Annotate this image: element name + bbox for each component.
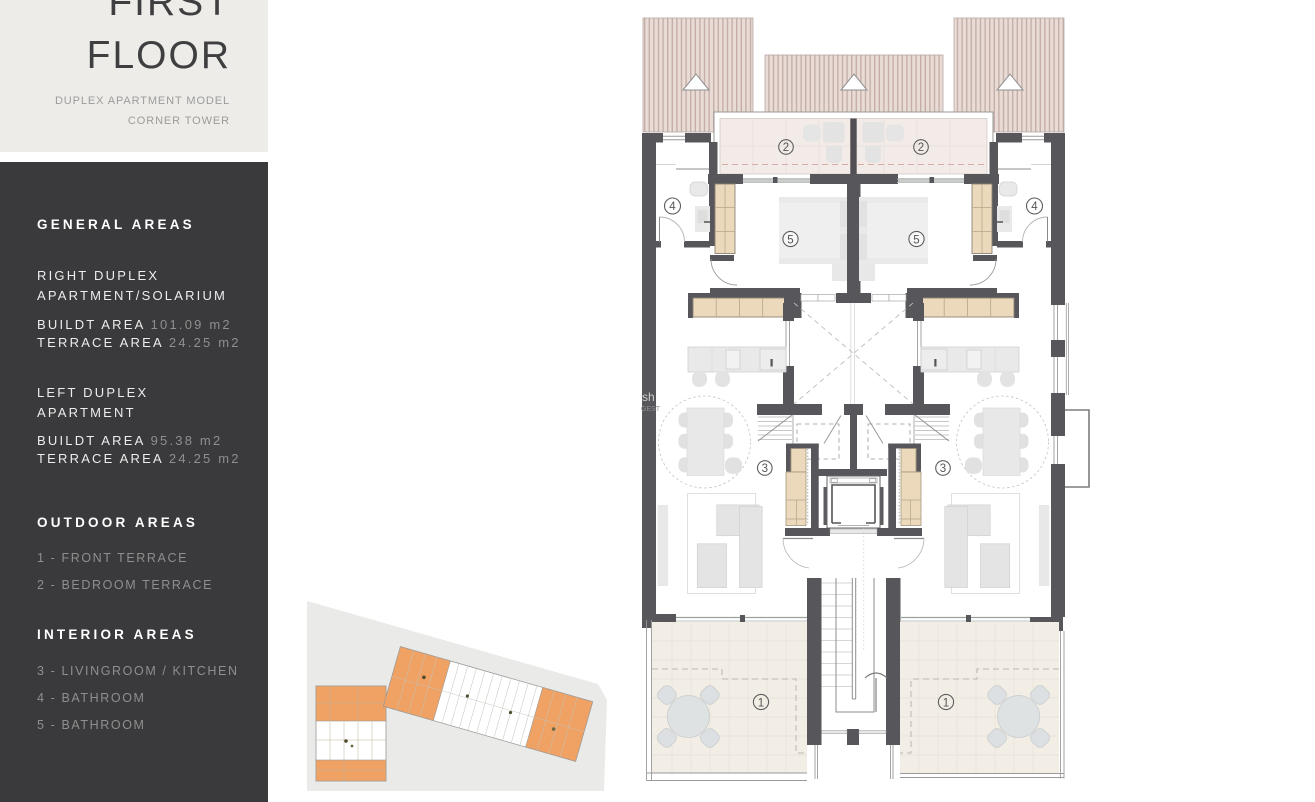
svg-text:4: 4 bbox=[1031, 201, 1038, 213]
svg-text:4: 4 bbox=[669, 201, 676, 213]
svg-text:1: 1 bbox=[943, 697, 949, 709]
svg-text:2: 2 bbox=[918, 142, 924, 154]
svg-text:2: 2 bbox=[783, 142, 789, 154]
svg-text:sh: sh bbox=[642, 390, 655, 404]
svg-text:3: 3 bbox=[762, 463, 768, 475]
svg-text:GEST: GEST bbox=[641, 406, 661, 413]
svg-text:3: 3 bbox=[940, 463, 946, 475]
svg-text:1: 1 bbox=[758, 697, 764, 709]
svg-text:5: 5 bbox=[787, 234, 793, 246]
svg-text:5: 5 bbox=[913, 234, 919, 246]
